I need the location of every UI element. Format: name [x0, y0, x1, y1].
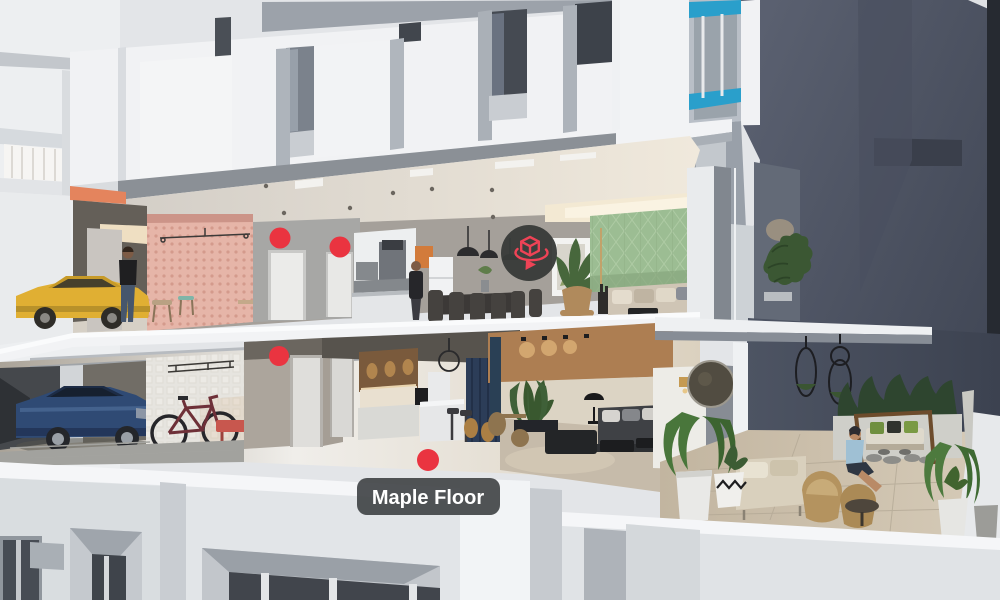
- svg-text:Maple Floor: Maple Floor: [372, 487, 484, 509]
